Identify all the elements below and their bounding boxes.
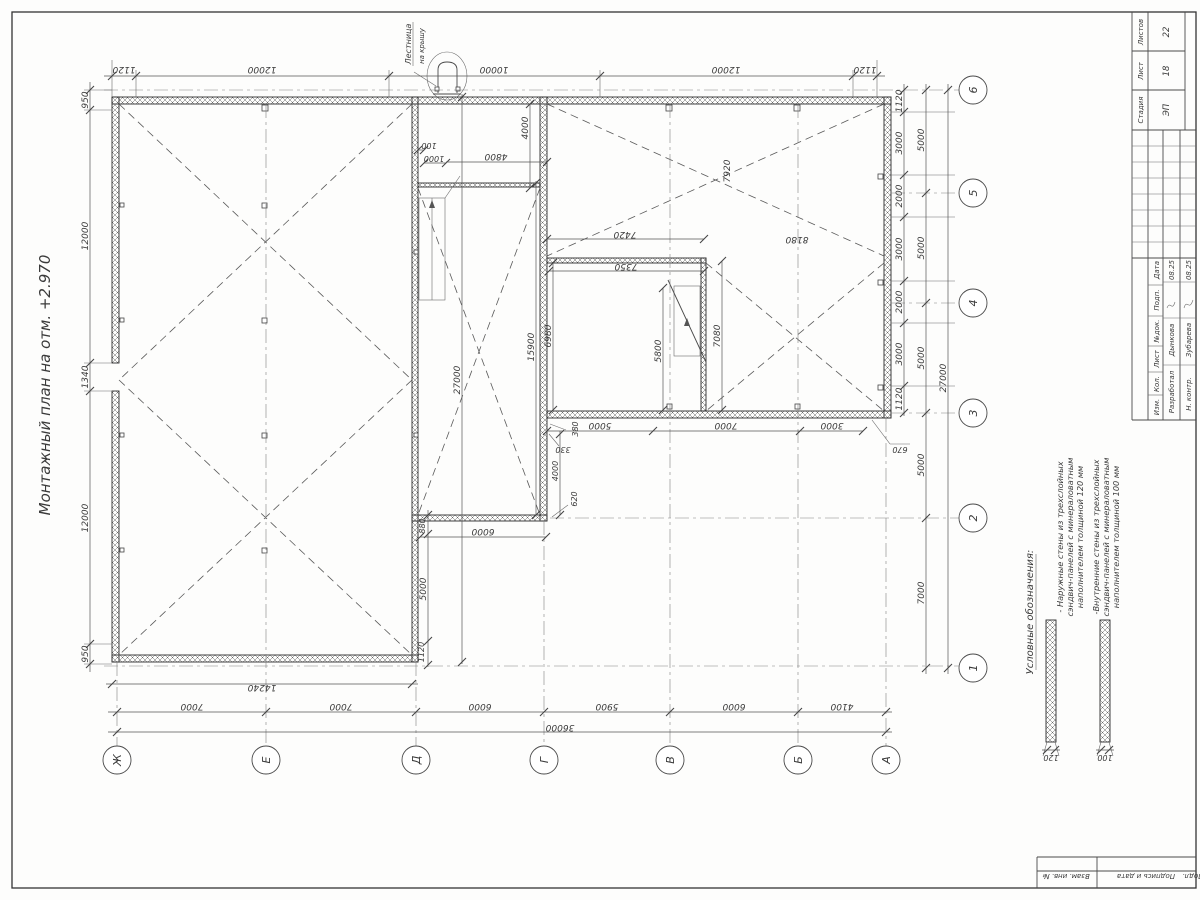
dim: 14240	[247, 682, 276, 692]
axis-label: 6	[967, 87, 980, 94]
dim: 6000	[468, 701, 491, 711]
axis-label: 1	[967, 665, 980, 672]
dim: 8180	[785, 234, 808, 244]
axis-bubbles-bottom: Ж Е Д Г В Б А	[103, 746, 900, 774]
dim: 5800	[654, 339, 664, 362]
stamp-side-podpis: Подпись и дата	[1117, 872, 1175, 880]
dim: 7080	[713, 324, 723, 347]
dim: 880	[418, 518, 427, 533]
axis-label: Б	[792, 756, 805, 764]
axis-label: Е	[260, 756, 273, 763]
dim: 5000	[917, 236, 927, 259]
stamp-h-kol: Кол.	[1153, 376, 1161, 392]
dim: 7000	[714, 420, 737, 430]
dim: 12000	[711, 64, 740, 74]
stamp-h-data: Дата	[1153, 261, 1161, 280]
dim: 7000	[917, 581, 927, 604]
dim: 6000	[722, 701, 745, 711]
legend-item2-line1: -Внутренние стены из трехслойных	[1091, 459, 1101, 614]
stamp-r2-name: Зубарева	[1185, 323, 1193, 357]
dim: 4800	[484, 151, 507, 161]
legend-dim-100: 100	[1097, 753, 1112, 762]
axis-label: 5	[967, 190, 980, 197]
dim: 4000	[521, 116, 531, 139]
dim: 7420	[613, 229, 636, 239]
dim: 5000	[917, 128, 927, 151]
stamp-r1-name: Дынкова	[1168, 324, 1176, 358]
dim: 1120	[895, 89, 905, 112]
dim: 670	[892, 445, 907, 454]
dimension-lines	[84, 60, 955, 736]
dim: 5000	[419, 577, 429, 600]
stamp-list-value: 18	[1162, 65, 1172, 76]
stamp-stadia-value: ЭП	[1162, 103, 1172, 117]
dim: 12000	[81, 503, 91, 532]
dim: 4000	[551, 461, 560, 481]
dim: 1000	[424, 154, 444, 163]
stamp-r2-role: Н. контр.	[1185, 377, 1193, 411]
dim: 620	[570, 491, 579, 506]
legend: Условные обозначения: - Наружные стены и…	[1024, 458, 1121, 762]
axis-label: Д	[410, 755, 423, 765]
dim: 7000	[180, 701, 203, 711]
axis-label: 2	[967, 515, 980, 522]
staircase-secondary	[668, 280, 706, 362]
dim: 27000	[939, 363, 949, 392]
dim: 3000	[895, 237, 905, 260]
dim: 6980	[544, 324, 554, 347]
legend-wall-symbol-exterior: 120	[1042, 620, 1060, 762]
dim: 5000	[917, 453, 927, 476]
axis-label: Ж	[111, 753, 124, 767]
stamp-side-podl: Подл.	[1182, 872, 1200, 880]
legend-item2-line2: сэндвич-панелей с минераловатным	[1101, 458, 1111, 617]
dim: 3000	[895, 131, 905, 154]
dim: 380	[571, 421, 580, 436]
dim: 1340	[81, 365, 91, 388]
stamp-h-ndok: №док.	[1153, 320, 1161, 344]
axis-label: А	[880, 756, 893, 765]
drawing-sheet: Монтажный план на отм. +2.970	[0, 0, 1200, 900]
dim: 2000	[895, 184, 905, 207]
legend-wall-symbol-interior: 100	[1096, 620, 1114, 762]
walls	[112, 97, 891, 662]
dim: 7920	[723, 159, 733, 182]
stamp-h-podp: Подп.	[1153, 289, 1161, 310]
dim: 1120	[417, 642, 426, 662]
legend-item1-line3: наполнителем толщиной 120 мм	[1075, 466, 1085, 608]
plan-drawing: Монтажный план на отм. +2.970	[0, 0, 1200, 900]
dim: 950	[81, 645, 91, 662]
ladder-label-1: Лестница	[404, 24, 413, 66]
dim: 1120	[853, 64, 876, 74]
dim: 4100	[830, 701, 853, 711]
dim: 15900	[527, 332, 537, 361]
stamp-r2-date: 08.25	[1185, 259, 1193, 280]
dim: 12000	[81, 221, 91, 250]
dim: 7350	[614, 261, 637, 271]
sheet-frame	[12, 12, 1196, 888]
page-title: Монтажный план на отм. +2.970	[36, 255, 54, 516]
axis-label: 4	[967, 300, 980, 307]
legend-heading: Условные обозначения:	[1024, 550, 1036, 675]
signature-1	[1167, 302, 1175, 308]
dim: 5000	[588, 420, 611, 430]
dim: 5000	[917, 346, 927, 369]
ladder-label-2: на крышу	[418, 27, 426, 64]
dim: 330	[555, 445, 570, 454]
dim: 3000	[895, 342, 905, 365]
stamp-list-label: Лист	[1137, 61, 1145, 81]
dim: 1120	[112, 64, 135, 74]
dim: 7000	[329, 701, 352, 711]
stamp-side-vzam: Взам. инв. №	[1042, 872, 1090, 880]
dim: 1120	[895, 387, 905, 410]
dim: 2000	[895, 290, 905, 313]
stamp-stadia-label: Стадия	[1137, 97, 1145, 124]
stamp-r1-role: Разработал	[1168, 370, 1176, 413]
dimension-texts: 1120 12000 10000 12000 1120 950 12000 13…	[81, 64, 949, 732]
title-block-side-strip: Взам. инв. № Подпись и дата Подл.	[1037, 857, 1200, 888]
dim: 10000	[479, 64, 508, 74]
axis-label: 3	[967, 410, 980, 417]
stamp-listov-label: Листов	[1137, 19, 1145, 46]
axis-label: В	[664, 756, 677, 764]
stamp-r1-date: 08.25	[1168, 259, 1176, 280]
axis-bubbles-right: 6 5 4 3 2 1	[959, 76, 987, 682]
stamp-h-izm: Изм.	[1153, 399, 1161, 415]
legend-dim-120: 120	[1043, 753, 1058, 762]
legend-item2-line3: наполнителем толщиной 100 мм	[1111, 466, 1121, 608]
legend-item1-line1: - Наружные стены из трехслойных	[1055, 461, 1065, 612]
stamp-listov-value: 22	[1162, 27, 1172, 38]
dim: 12000	[247, 64, 276, 74]
stamp-h-list: Лист	[1153, 349, 1161, 369]
signature-2	[1184, 300, 1193, 308]
staircase-main	[419, 176, 460, 300]
dim: 27000	[453, 365, 463, 394]
legend-item1-line2: сэндвич-панелей с минераловатным	[1065, 458, 1075, 617]
dim: 5900	[595, 701, 618, 711]
column-markers	[120, 105, 883, 553]
dim: 36000	[545, 722, 574, 732]
title-block: Листов Лист Стадия 22 18 ЭП Дата Подп. №…	[1132, 12, 1196, 420]
dim: 3000	[820, 420, 843, 430]
dim: 950	[81, 91, 91, 108]
dim: 6000	[471, 526, 494, 536]
axis-label: Г	[538, 756, 551, 763]
dim: 100	[421, 141, 436, 150]
